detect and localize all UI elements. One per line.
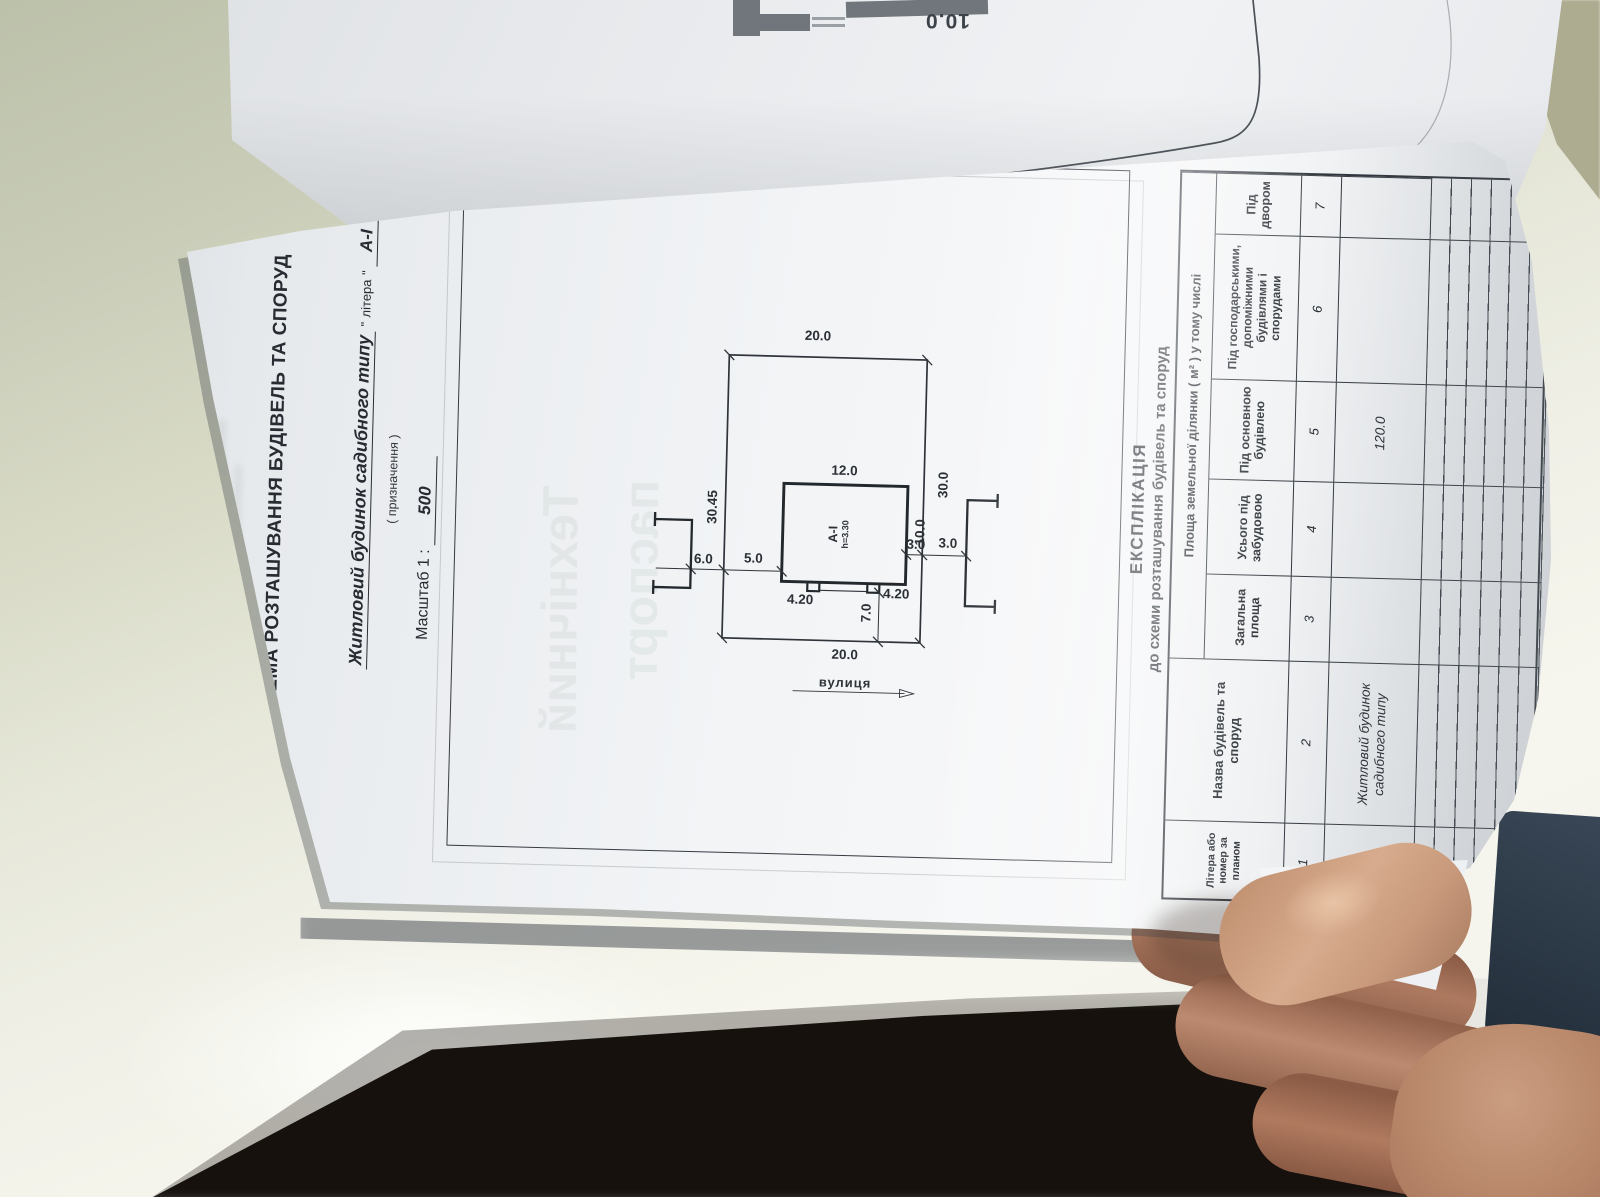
row-yard bbox=[1341, 176, 1433, 239]
dim-right-inner: 3.0 bbox=[906, 537, 925, 552]
street-label: вулиця bbox=[819, 674, 872, 690]
col-header-yard: Під двором bbox=[1216, 173, 1303, 236]
table-grid-line bbox=[1419, 664, 1539, 668]
dim-parcel-left: 30.45 bbox=[704, 490, 720, 524]
col-header-built-total: Усього під забудовою bbox=[1207, 478, 1294, 575]
building-type-line: Житловий будинок садибного типу " літера… bbox=[344, 188, 378, 688]
dim-parcel-right: 30.0 bbox=[935, 472, 951, 499]
col-number: 5 bbox=[1294, 381, 1337, 482]
col-number: 7 bbox=[1301, 175, 1343, 237]
scale-label: Масштаб 1 : bbox=[414, 549, 433, 640]
litera-quote-close: " bbox=[359, 270, 374, 275]
dark-object bbox=[1484, 810, 1600, 1046]
table-grid-line bbox=[1422, 579, 1542, 583]
dim-front: 7.0 bbox=[858, 603, 873, 622]
table-grid-line bbox=[1424, 484, 1544, 488]
dim-left-inner: 5.0 bbox=[744, 550, 763, 565]
house-litera: А-І bbox=[826, 526, 840, 543]
empty-rows bbox=[1413, 178, 1552, 907]
dim-left-outer: 6.0 bbox=[694, 551, 713, 566]
row-built-total bbox=[1332, 482, 1424, 579]
explication-table: Літера або номер за планом Назва будівел… bbox=[1161, 170, 1550, 909]
site-plan-lines bbox=[448, 155, 1132, 865]
dim-porch-left: 4.20 bbox=[787, 591, 814, 607]
scale-line: Масштаб 1 : 500 bbox=[412, 456, 437, 640]
site-plan: 20.0 30.45 30.0 12.0 10.0 А-І h=3.30 6.0… bbox=[448, 155, 1132, 865]
col-number: 4 bbox=[1292, 481, 1334, 577]
dim-parcel-bottom: 20.0 bbox=[831, 647, 858, 663]
litera-quote-open: " bbox=[358, 322, 373, 327]
col-number: 2 bbox=[1285, 661, 1329, 824]
drawing-frame: 20.0 30.45 30.0 12.0 10.0 А-І h=3.30 6.0… bbox=[446, 153, 1130, 863]
photo-scene: 10.0 СХЕМА РОЗТАШУВАННЯ БУДІВЕЛЬ ТА СПОР… bbox=[0, 0, 1600, 1197]
dim-right-outer: 3.0 bbox=[938, 535, 957, 550]
col-number: 3 bbox=[1290, 576, 1332, 662]
col-header-main-building: Під основною будівлею bbox=[1209, 379, 1297, 481]
purpose-label: ( призначення ) bbox=[380, 269, 405, 689]
row-building-name: Житловий будинок садибного типу bbox=[1325, 662, 1419, 826]
house-height: h=3.30 bbox=[840, 520, 851, 549]
table-grid-line bbox=[1427, 384, 1547, 388]
litera-label: літера bbox=[358, 279, 374, 317]
dim-porch-right: 4.20 bbox=[883, 586, 910, 602]
house-label: А-І h=3.30 bbox=[828, 513, 852, 556]
row-auxiliary bbox=[1337, 237, 1431, 384]
scale-value: 500 bbox=[414, 456, 437, 545]
col-header-total-area: Загальна площа bbox=[1205, 573, 1292, 660]
dim-house-width: 12.0 bbox=[831, 463, 858, 479]
col-header-auxiliary: Під господарськими, допоміжними будівлям… bbox=[1212, 234, 1301, 381]
table-grid-line bbox=[1431, 239, 1551, 243]
dim-parcel-top: 20.0 bbox=[805, 328, 832, 344]
col-header-name: Назва будівель та споруд bbox=[1165, 657, 1289, 822]
document-content: СХЕМА РОЗТАШУВАННЯ БУДІВЕЛЬ ТА СПОРУД Жи… bbox=[192, 144, 1568, 969]
row-total-area bbox=[1330, 577, 1422, 664]
building-type-value: Житловий будинок садибного типу bbox=[345, 331, 376, 670]
row-under-main-building: 120.0 bbox=[1334, 382, 1427, 484]
col-number: 6 bbox=[1297, 236, 1341, 382]
